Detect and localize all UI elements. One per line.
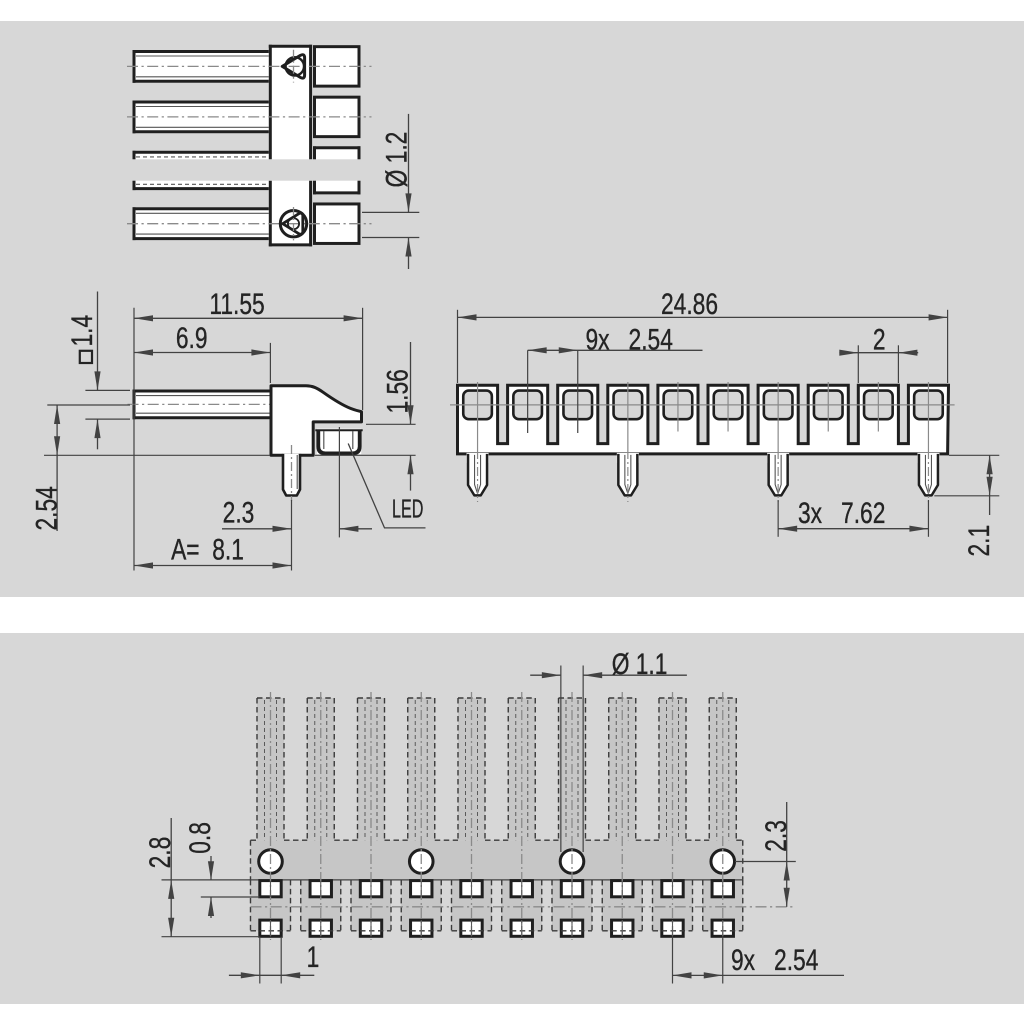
svg-text:1: 1 (307, 940, 320, 974)
svg-text:2.8: 2.8 (143, 837, 177, 869)
svg-text:9x 2.54: 9x 2.54 (586, 322, 674, 356)
svg-text:2.1: 2.1 (962, 525, 996, 557)
svg-text:1.56: 1.56 (381, 369, 415, 413)
svg-text:2.54: 2.54 (29, 486, 63, 531)
svg-text:0.8: 0.8 (183, 822, 217, 854)
svg-text:6.9: 6.9 (176, 321, 208, 355)
svg-text:Ø 1.1: Ø 1.1 (612, 647, 668, 681)
svg-text:24.86: 24.86 (661, 287, 718, 321)
svg-text:Ø 1.2: Ø 1.2 (380, 132, 414, 188)
svg-text:2.3: 2.3 (223, 496, 255, 530)
svg-text:3x 7.62: 3x 7.62 (798, 496, 885, 530)
svg-text:11.55: 11.55 (209, 287, 264, 321)
svg-text:2.3: 2.3 (759, 820, 793, 852)
svg-text:2: 2 (873, 322, 886, 356)
svg-text:LED: LED (392, 494, 423, 524)
svg-text:9x 2.54: 9x 2.54 (731, 943, 819, 977)
svg-text:1.4: 1.4 (65, 315, 99, 347)
svg-text:A= 8.1: A= 8.1 (171, 532, 244, 566)
